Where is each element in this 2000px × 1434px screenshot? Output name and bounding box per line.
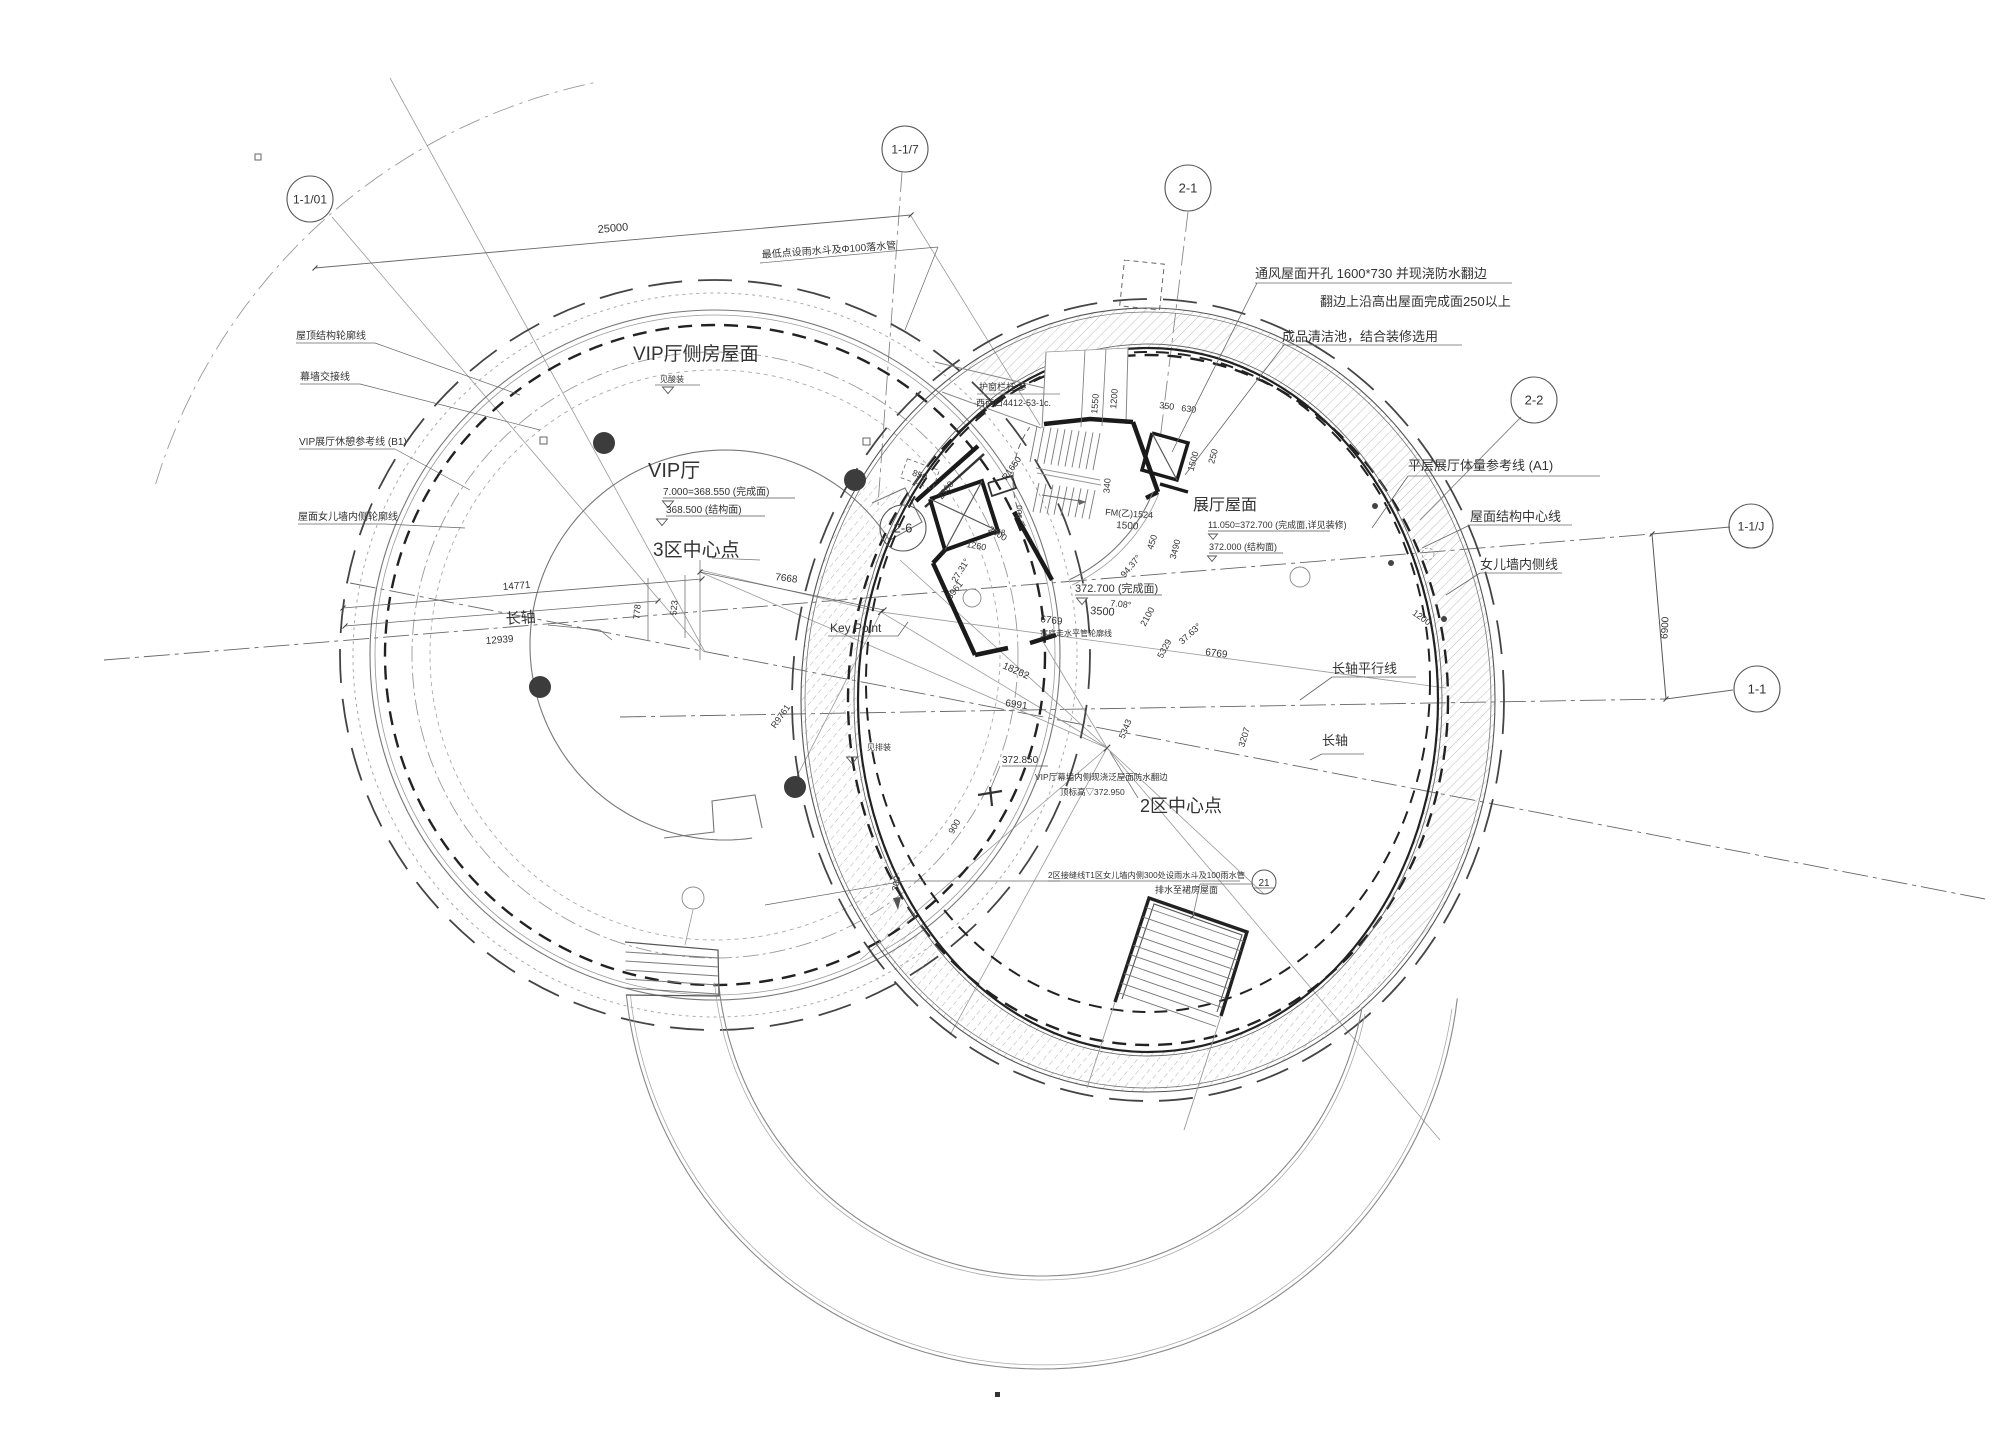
svg-text:Key Point: Key Point	[830, 621, 882, 635]
svg-text:屋面女儿墙内侧轮廓线: 屋面女儿墙内侧轮廓线	[298, 510, 398, 523]
svg-text:900: 900	[1015, 505, 1024, 519]
svg-text:3区中心点: 3区中心点	[653, 539, 740, 561]
svg-text:1550: 1550	[1089, 393, 1101, 414]
svg-text:顶标高▽372.950: 顶标高▽372.950	[1060, 787, 1125, 797]
svg-text:1-1/01: 1-1/01	[293, 192, 327, 206]
svg-text:1-1/J: 1-1/J	[1738, 519, 1765, 533]
svg-text:幕墙交接线: 幕墙交接线	[300, 370, 350, 383]
svg-text:6900: 6900	[1659, 616, 1671, 639]
svg-text:展厅屋面: 展厅屋面	[1193, 497, 1257, 514]
svg-text:11.050=372.700 (完成面,详见装修): 11.050=372.700 (完成面,详见装修)	[1208, 519, 1347, 530]
svg-text:屋顶结构轮廓线: 屋顶结构轮廓线	[296, 329, 366, 342]
svg-text:VIP厅幕墙内侧现浇泛屋面防水翻边: VIP厅幕墙内侧现浇泛屋面防水翻边	[1035, 772, 1168, 782]
svg-text:372.000 (结构面): 372.000 (结构面)	[1209, 541, 1277, 552]
svg-text:宽底走水平管轮廓线: 宽底走水平管轮廓线	[1040, 628, 1112, 638]
svg-text:2区接缝线T1区女儿墙内侧300处设雨水斗及100雨水管: 2区接缝线T1区女儿墙内侧300处设雨水斗及100雨水管	[1048, 870, 1245, 880]
svg-text:1200: 1200	[1108, 388, 1120, 409]
svg-text:2-6: 2-6	[894, 521, 913, 536]
svg-text:VIP展厅休憩参考线 (B1): VIP展厅休憩参考线 (B1)	[299, 435, 407, 448]
svg-text:1500: 1500	[1116, 520, 1139, 533]
svg-text:翻边上沿高出屋面完成面250以上: 翻边上沿高出屋面完成面250以上	[1320, 294, 1511, 309]
svg-text:372.850: 372.850	[1002, 755, 1039, 766]
svg-text:西南口4412-53-1c.: 西南口4412-53-1c.	[976, 397, 1051, 408]
svg-text:长轴: 长轴	[1322, 733, 1348, 748]
svg-text:1-1: 1-1	[1748, 682, 1767, 697]
svg-text:368.500 (结构面): 368.500 (结构面)	[666, 503, 742, 516]
svg-text:见排装: 见排装	[867, 742, 891, 752]
svg-text:1-1/7: 1-1/7	[891, 142, 919, 156]
svg-text:排水至裙房屋面: 排水至裙房屋面	[1155, 884, 1218, 895]
svg-text:778: 778	[631, 604, 642, 620]
svg-text:523: 523	[668, 600, 679, 616]
svg-text:屋面结构中心线: 屋面结构中心线	[1470, 509, 1561, 524]
svg-text:长轴平行线: 长轴平行线	[1332, 661, 1397, 676]
svg-text:VIP厅: VIP厅	[648, 460, 700, 482]
svg-text:通风屋面开孔 1600*730 并现浇防水翻边: 通风屋面开孔 1600*730 并现浇防水翻边	[1255, 266, 1487, 281]
svg-text:成品清洁池，结合装修选用: 成品清洁池，结合装修选用	[1282, 329, 1438, 344]
svg-text:340: 340	[1101, 478, 1112, 494]
svg-text:护窗栏杆 参: 护窗栏杆 参	[979, 381, 1027, 392]
svg-text:14771: 14771	[502, 580, 531, 593]
svg-text:VIP厅侧房屋面: VIP厅侧房屋面	[633, 343, 759, 365]
svg-text:7.000=368.550 (完成面): 7.000=368.550 (完成面)	[663, 485, 769, 498]
svg-text:女儿墙内侧线: 女儿墙内侧线	[1480, 557, 1558, 572]
svg-text:2-1: 2-1	[1179, 181, 1198, 196]
svg-text:372.700 (完成面): 372.700 (完成面)	[1075, 581, 1158, 595]
svg-text:2-2: 2-2	[1525, 393, 1544, 408]
svg-text:长轴: 长轴	[505, 609, 536, 628]
svg-text:350: 350	[1159, 400, 1175, 412]
svg-text:21: 21	[1258, 878, 1270, 889]
svg-text:平层展厅体量参考线 (A1): 平层展厅体量参考线 (A1)	[1408, 458, 1553, 473]
svg-text:2区中心点: 2区中心点	[1140, 796, 1222, 816]
svg-text:见酸装: 见酸装	[660, 374, 684, 384]
svg-text:12939: 12939	[485, 634, 514, 647]
svg-text:630: 630	[1181, 403, 1197, 415]
